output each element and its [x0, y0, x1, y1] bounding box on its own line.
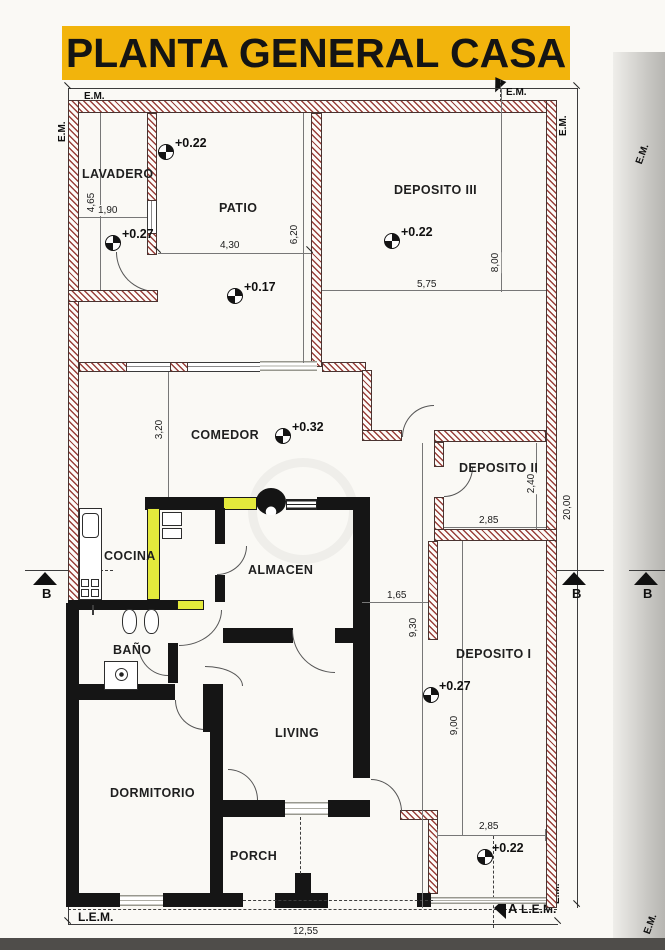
door-arc-almacen	[217, 546, 247, 575]
floor-plan-sheet: PLANTA GENERAL CASA E.M. E.M. E.M. E.M. …	[0, 0, 665, 950]
dim-yard-w: 2,85	[478, 821, 499, 832]
benchmark-icon	[384, 233, 400, 249]
wall-west-lower	[66, 603, 79, 907]
kitchen-sink	[82, 513, 99, 538]
dim-line-yard-w	[437, 835, 546, 836]
em-label-right-vertical: E.M.	[558, 115, 569, 136]
dim-line-dep2-w	[444, 527, 546, 528]
wall-lavadero-south	[68, 290, 158, 302]
wall-new-cocina-north	[223, 497, 257, 510]
wall-new-hall-north	[177, 600, 204, 610]
level-patio-upper: +0.22	[175, 136, 207, 150]
porch-edge-dashed	[300, 817, 301, 874]
benchmark-icon	[227, 288, 243, 304]
section-b-arrow-right-icon	[562, 572, 586, 585]
level-lavadero: +0.27	[122, 227, 154, 241]
wall-deposito1-west-lower	[428, 812, 438, 894]
benchmark-icon	[158, 144, 174, 160]
shower-drain-icon	[115, 668, 128, 681]
lem-label-bottom-left: L.E.M.	[78, 910, 113, 924]
door-arc-almacen-living	[292, 630, 335, 673]
wall-south-1	[66, 893, 120, 907]
door-arc-hall	[179, 610, 222, 646]
pantry-cabinet	[162, 512, 182, 526]
door-arc-lavadero	[116, 252, 156, 292]
door-arc-comedor-deposito	[402, 405, 434, 437]
dim-line-lot-height	[577, 88, 578, 908]
wall-comedor-north-3	[322, 362, 366, 372]
dim-dep1-ha: 9,30	[408, 617, 419, 638]
section-b-letter-edge: B	[643, 586, 652, 601]
level-patio-lower: +0.17	[244, 280, 276, 294]
wall-deposito2-north	[434, 430, 546, 442]
wall-living-south-2	[328, 800, 370, 817]
stove-burner	[91, 579, 99, 587]
dim-line-lot-width	[68, 924, 558, 925]
room-label-comedor: COMEDOR	[191, 428, 259, 442]
section-b-arrow-edge-icon	[634, 572, 658, 585]
dim-line-dep3-w	[322, 290, 546, 291]
dim-line-patio-h	[303, 113, 304, 363]
dim-dep3-w: 5,75	[416, 279, 437, 290]
dim-line-lavadero-h	[100, 113, 101, 290]
dim-line-lavadero-w	[79, 217, 147, 218]
dim-dep3-h: 8,00	[490, 252, 501, 273]
dim-lot-h: 20,00	[562, 494, 573, 521]
wall-almacen-south-2	[335, 628, 363, 643]
wood-stove-icon	[256, 488, 286, 515]
wall-north	[68, 100, 557, 113]
dim-dep2-h: 2,40	[526, 473, 537, 494]
wall-living-south-1	[223, 800, 285, 817]
stove-burner	[91, 589, 99, 597]
dim-lavadero-h: 4,65	[86, 192, 97, 213]
dim-lot-w: 12,55	[292, 926, 319, 937]
porch-front-dashed	[243, 900, 433, 901]
bidet	[144, 609, 159, 634]
wall-comedor-step	[362, 430, 402, 441]
room-label-deposito3: DEPOSITO III	[394, 183, 477, 197]
toilet	[122, 609, 137, 634]
dim-corridor-w: 1,65	[386, 590, 407, 601]
dim-dep1-hb: 9,00	[449, 715, 460, 736]
section-b-letter-right: B	[572, 586, 581, 601]
wall-almacen-west-lower	[215, 575, 225, 602]
porch-column-stem	[295, 873, 311, 894]
lem-dashed-line	[68, 909, 557, 910]
window-comedor-2	[188, 362, 260, 372]
room-label-patio: PATIO	[219, 201, 257, 215]
room-label-almacen: ALMACEN	[248, 563, 313, 577]
bath-tap-icon	[92, 605, 94, 615]
door-arc-dormitorio	[175, 700, 205, 730]
dim-lavadero-w: 1,90	[97, 205, 118, 216]
tick	[437, 829, 438, 841]
dim-line-dep1-ha	[422, 443, 423, 908]
wall-comedor-north-2	[170, 362, 188, 372]
wall-south-2	[163, 893, 243, 907]
section-b-arrow-left-icon	[33, 572, 57, 585]
room-label-dormitorio: DORMITORIO	[110, 786, 195, 800]
wall-deposito1-connector	[400, 810, 438, 820]
door-arc-living-porch	[228, 769, 258, 800]
wall-deposito2-west-lower	[434, 497, 444, 530]
em-label-left-vertical: E.M.	[57, 121, 68, 142]
window-dormitorio	[120, 895, 163, 906]
room-label-cocina: COCINA	[104, 549, 156, 563]
level-comedor: +0.32	[292, 420, 324, 434]
room-label-deposito1: DEPOSITO I	[456, 647, 531, 661]
level-yard: +0.22	[492, 841, 524, 855]
dim-line-patio-w	[158, 253, 311, 254]
room-label-porch: PORCH	[230, 849, 277, 863]
tick	[545, 829, 546, 841]
wall-comedor-north-1	[79, 362, 127, 372]
wall-almacen-south-1	[223, 628, 293, 643]
window-comedor-3	[260, 361, 317, 371]
benchmark-icon	[105, 235, 121, 251]
title-banner: PLANTA GENERAL CASA	[62, 26, 570, 80]
wall-yard-south-light	[431, 897, 546, 904]
wall-almacen-west-upper	[215, 508, 225, 544]
window-comedor-1	[127, 362, 170, 372]
stove-burner	[81, 589, 89, 597]
window-porch	[285, 802, 328, 815]
wall-bano-east	[168, 643, 178, 683]
wall-deposito1-west-upper	[428, 541, 438, 640]
scan-bottom-shadow	[0, 938, 665, 950]
wall-dormitorio-east	[210, 688, 223, 905]
page-title: PLANTA GENERAL CASA	[66, 30, 566, 77]
level-deposito1: +0.27	[439, 679, 471, 693]
dim-line-comedor-h	[168, 372, 169, 497]
dim-patio-h: 6,20	[289, 224, 300, 245]
room-label-bano: BAÑO	[113, 643, 151, 657]
room-label-living: LIVING	[275, 726, 319, 740]
wall-deposito2-west-upper	[434, 442, 444, 467]
dim-dep2-w: 2,85	[478, 515, 499, 526]
dim-comedor-h: 3,20	[154, 419, 165, 440]
grill-grate-icon	[286, 499, 317, 510]
page-edge-shadow	[613, 52, 665, 950]
dim-line-corridor-w	[362, 602, 428, 603]
wall-comedor-east	[362, 370, 372, 438]
benchmark-icon	[477, 849, 493, 865]
level-deposito3: +0.22	[401, 225, 433, 239]
stove-burner	[81, 579, 89, 587]
door-arc-living-east	[371, 779, 402, 812]
wall-bano-north	[68, 600, 177, 610]
wall-lavadero-east-upper	[147, 113, 157, 201]
benchmark-icon	[423, 687, 439, 703]
wall-patio-deposito3-divider	[311, 113, 322, 367]
benchmark-icon	[275, 428, 291, 444]
wall-east	[546, 100, 557, 908]
door-arc-living-hall	[205, 666, 243, 686]
pantry-cabinet	[162, 528, 182, 539]
em-label-top-right: E.M.	[506, 87, 527, 98]
wall-deposito2-south	[434, 529, 557, 541]
section-b-letter-left: B	[42, 586, 51, 601]
room-label-lavadero: LAVADERO	[82, 167, 154, 181]
dim-patio-w: 4,30	[219, 240, 240, 251]
wall-west-upper	[68, 100, 79, 610]
